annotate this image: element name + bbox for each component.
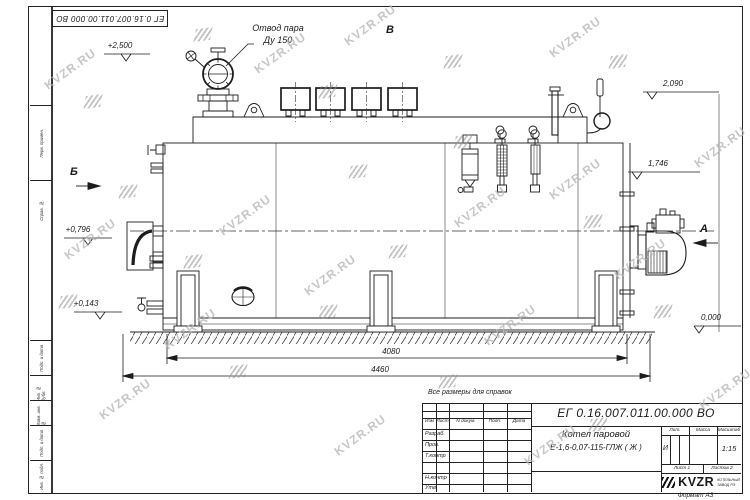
col-ndoc: N докум.: [449, 419, 483, 424]
drawing-sheet: Отвод пара Ду 150 +2,500 2,090 1,746 +0,…: [0, 0, 750, 500]
col-izm: Изм: [423, 419, 436, 424]
margin-cell-sprav-n: Справ. №: [30, 180, 52, 241]
lit-value: И: [661, 445, 670, 452]
sheet-number: Лист 1: [661, 466, 703, 471]
margin-label: Подп. и дата: [39, 345, 44, 372]
title-block-doc-number: ЕГ 0.16.007.011.00.000 ВО: [533, 407, 739, 420]
row-utv: Утв.: [425, 486, 438, 492]
col-list: Лист: [436, 419, 449, 424]
margin-cell-inv-podl: Инв. № подл.: [30, 460, 52, 493]
centerlines: [130, 94, 719, 332]
margin-label: Перв. примен.: [39, 129, 44, 158]
margin-cell-podp-data-2: Подп. и дата: [30, 425, 52, 461]
dim-4080: 4080: [351, 348, 431, 356]
level-plus0796: +0,796: [54, 226, 102, 234]
dim-4460: 4460: [340, 366, 420, 374]
level-0000: 0,000: [687, 314, 735, 322]
product-name-line2: Е-1,6-0,07-115-ГЛЖ ( Ж ): [533, 444, 659, 452]
sheets-total: Листов 2: [703, 466, 741, 471]
company-logo: KVZR КОТЕЛЬНЫЙ ЗАВОД РЭ: [661, 473, 741, 492]
scale-label: Масштаб: [717, 428, 741, 433]
reference-note: Все размеры для справок: [428, 389, 512, 396]
steam-outlet-valve: [186, 44, 254, 117]
view-label-a: А: [700, 224, 708, 236]
manhole: [232, 287, 254, 305]
margin-label: Инв. № подл.: [39, 463, 44, 490]
margin-label: Справ. №: [39, 201, 44, 221]
margin-label: Подп. и дата: [39, 430, 44, 457]
scale-value: 1:15: [717, 445, 741, 453]
row-prov: Пров.: [425, 443, 440, 449]
doc-number-stamp-text: ЕГ 0.16.007.011.00.000 ВО: [56, 14, 164, 23]
col-podp: Подп.: [483, 419, 507, 424]
level-2090: 2,090: [648, 80, 698, 88]
row-nkontr: Н.контр: [425, 476, 447, 482]
kvzr-brand: KVZR: [678, 476, 714, 489]
level-plus0143: +0,143: [62, 300, 110, 308]
view-label-b: Б: [70, 167, 78, 179]
drum-fittings: [463, 79, 610, 143]
safety-valve-boxes: [281, 82, 417, 122]
level-plus2500: +2,500: [96, 42, 144, 50]
format-label: Формат А3: [648, 493, 743, 500]
product-name-line1: Котел паровой: [533, 430, 659, 440]
mass-label: Масса: [689, 428, 717, 433]
margin-cell-podp-data-1: Подп. и дата: [30, 340, 52, 376]
col-data: Дата: [507, 419, 531, 424]
steam-outlet-callout-line1: Отвод пара: [245, 24, 311, 33]
row-razrab: Разраб.: [425, 432, 445, 438]
steam-outlet-callout-line2: Ду 150: [250, 36, 306, 45]
margin-cell-inv-dubl: Инв. № дубл.: [30, 375, 52, 401]
margin-cell-vzam-inv: Взам. инв. №: [30, 400, 52, 426]
ground: [130, 332, 655, 344]
title-block: ЕГ 0.16.007.011.00.000 ВО Котел паровой …: [422, 403, 743, 494]
kvzr-brand-subtitle: КОТЕЛЬНЫЙ ЗАВОД РЭ: [717, 478, 740, 487]
lit-label: Лит.: [661, 428, 689, 433]
level-1746: 1,746: [633, 160, 683, 168]
margin-cell-perv-primen: Перв. примен.: [30, 105, 52, 181]
kvzr-logo-bars-icon: [662, 477, 675, 488]
front-fittings: [127, 145, 165, 314]
margin-label: Инв. № дубл.: [36, 376, 46, 401]
view-label-v: В: [386, 25, 394, 37]
brand-line2: ЗАВОД РЭ: [717, 483, 740, 487]
burner-fan-unit: [630, 209, 686, 275]
row-tkontr: Т.контр: [425, 454, 446, 460]
doc-number-stamp: ЕГ 0.16.007.011.00.000 ВО: [52, 10, 168, 27]
margin-label: Взам. инв. №: [36, 401, 46, 426]
